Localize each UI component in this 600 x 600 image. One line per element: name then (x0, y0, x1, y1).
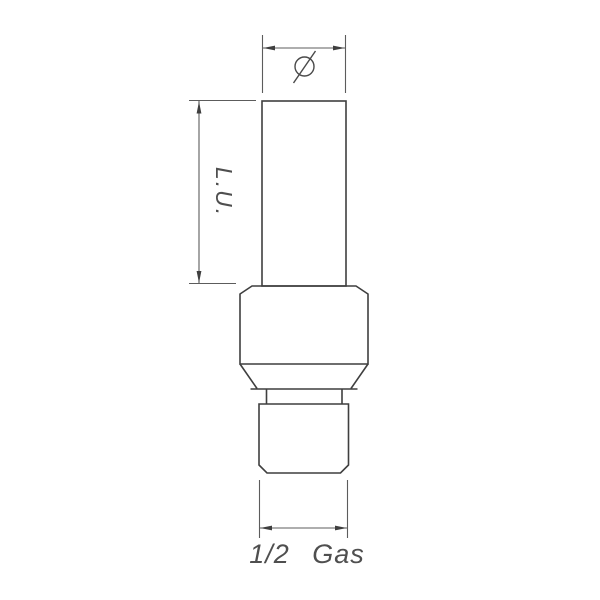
diameter-arrow-left (263, 46, 275, 51)
part-hex-body (240, 286, 368, 364)
technical-drawing: L.U. 1/2 Gas (0, 0, 600, 600)
dimension-diameter (263, 35, 346, 93)
part-neck (267, 390, 343, 404)
length-arrow-top (197, 102, 202, 114)
diameter-symbol-icon (294, 51, 316, 83)
part-outline (240, 101, 368, 473)
length-arrow-bottom (197, 271, 202, 283)
part-taper (240, 364, 368, 389)
diameter-extension-lines (263, 35, 346, 93)
thread-dimension-label: 1/2 Gas (249, 539, 365, 569)
dimension-length: L.U. (189, 101, 256, 284)
drawing-canvas: L.U. 1/2 Gas (0, 0, 600, 600)
dimension-thread: 1/2 Gas (249, 480, 365, 569)
thread-arrow-left (260, 526, 272, 531)
thread-arrow-right (335, 526, 347, 531)
thread-extension-lines (260, 480, 348, 538)
length-dimension-label: L.U. (211, 167, 237, 217)
part-threaded-connector (259, 404, 349, 473)
part-upper-tube (262, 101, 346, 286)
diameter-arrow-right (333, 46, 345, 51)
